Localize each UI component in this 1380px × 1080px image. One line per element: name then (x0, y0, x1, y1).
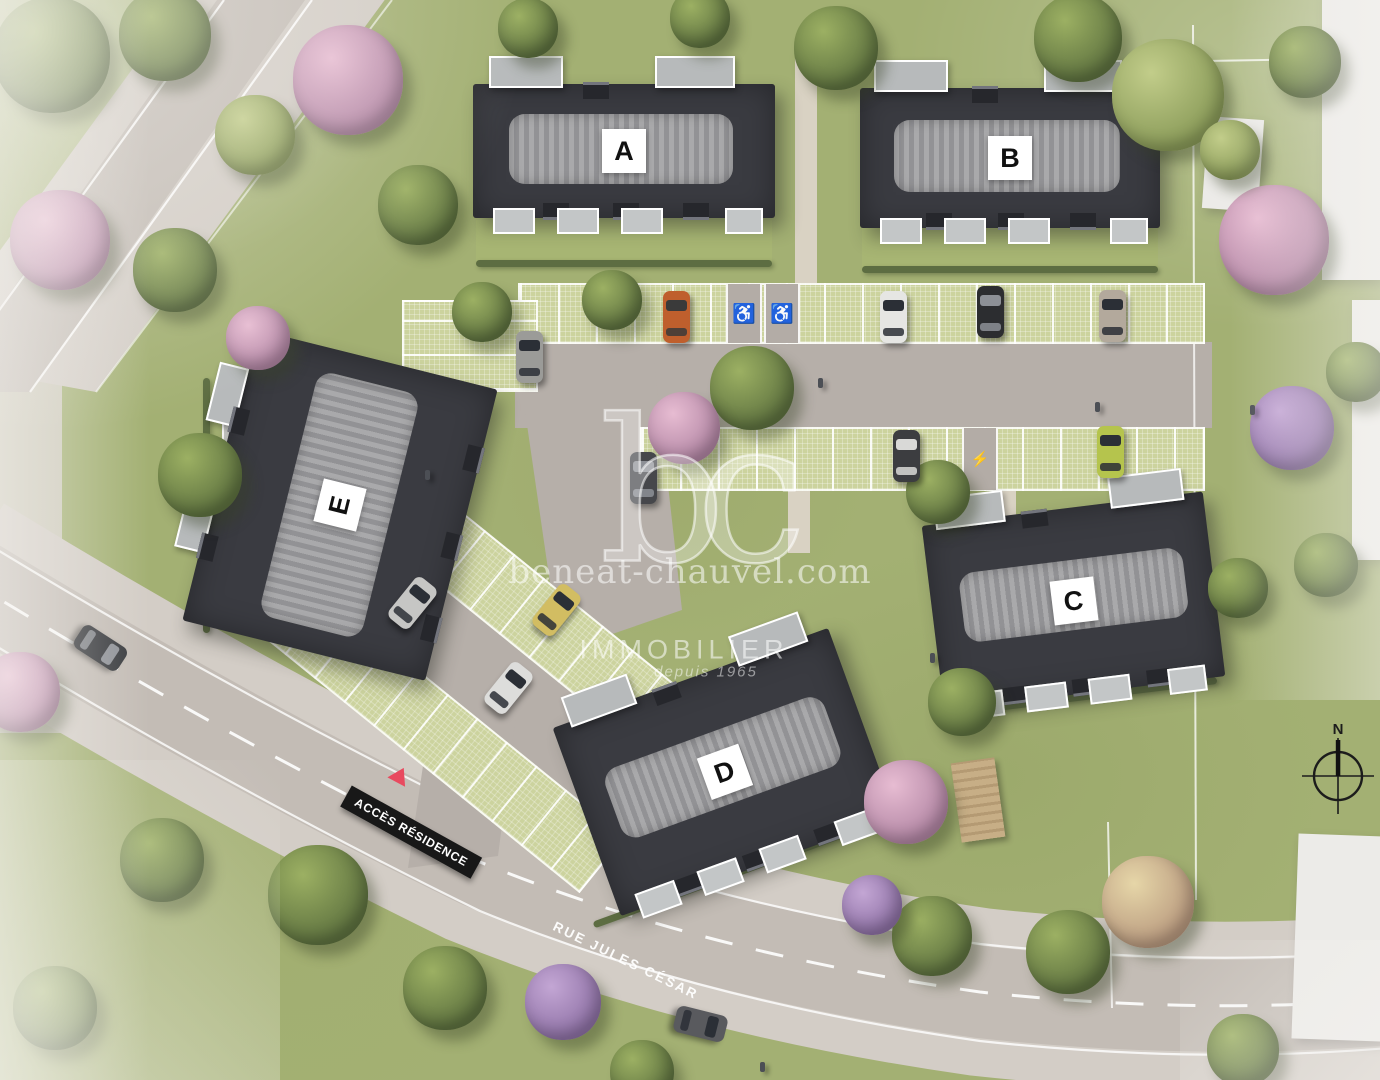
flowering-tree (1219, 185, 1329, 295)
car-windshield (99, 642, 120, 666)
car-rear-window (666, 328, 687, 336)
tree (120, 818, 204, 902)
car (630, 452, 657, 504)
car-rear-window (1100, 463, 1121, 471)
car-rear-window (1102, 327, 1123, 335)
flowering-tree (1102, 856, 1194, 948)
car (880, 291, 907, 343)
compass-north-needle (1336, 740, 1341, 776)
balcony (493, 208, 535, 234)
tree (498, 0, 558, 58)
roof-terrace (874, 60, 948, 92)
roof-terrace (655, 56, 735, 88)
car (1097, 426, 1124, 478)
car-rear-window (883, 328, 904, 336)
tree (119, 0, 211, 81)
building-label-text: C (1062, 584, 1085, 617)
car-windshield (1100, 435, 1121, 446)
disabled-parking-stall: ♿ (726, 284, 762, 343)
balcony (725, 208, 763, 234)
person (425, 470, 430, 480)
balcony (944, 218, 986, 244)
dormer (683, 203, 709, 220)
balcony (621, 208, 663, 234)
car-windshield (519, 340, 540, 351)
car-rear-window (488, 690, 509, 709)
flowering-tree (226, 306, 290, 370)
balcony (1110, 218, 1148, 244)
balcony (1008, 218, 1050, 244)
person (818, 378, 823, 388)
car (516, 331, 543, 383)
tree (1294, 533, 1358, 597)
compass: N (1298, 718, 1378, 818)
flowering-tree (1250, 386, 1334, 470)
car-windshield (883, 300, 904, 311)
car-rear-window (896, 467, 917, 475)
flowering-tree (525, 964, 601, 1040)
car-windshield (633, 461, 654, 472)
tree (710, 346, 794, 430)
wheelchair-icon: ♿ (770, 302, 794, 326)
flowering-tree (10, 190, 110, 290)
compass-north-label: N (1333, 721, 1344, 738)
dormer (972, 86, 998, 103)
ev-charging-icon: ⚡ (971, 450, 990, 468)
building-a-label: A (602, 129, 646, 173)
tree (1200, 120, 1260, 180)
car-rear-window (519, 368, 540, 376)
tree (794, 6, 878, 90)
balcony (1024, 682, 1069, 713)
dormer (583, 82, 609, 99)
car-rear-window (536, 612, 557, 631)
car (663, 291, 690, 343)
dormer (1021, 509, 1049, 529)
building-b-label: B (988, 136, 1032, 180)
car-windshield (896, 439, 917, 450)
neighbor-building (1291, 833, 1380, 1041)
flowering-tree (864, 760, 948, 844)
tree (1026, 910, 1110, 994)
tree (378, 165, 458, 245)
building-label-text: D (710, 754, 739, 790)
tree (403, 946, 487, 1030)
car-rear-window (633, 489, 654, 497)
tree (158, 433, 242, 517)
car (893, 430, 920, 482)
tree (0, 0, 110, 113)
person (1250, 405, 1255, 415)
car (1099, 290, 1126, 342)
person (1095, 402, 1100, 412)
tree (1208, 558, 1268, 618)
building-label-text: B (1000, 143, 1020, 174)
building-label-text: A (614, 136, 634, 167)
flowering-tree (293, 25, 403, 135)
person (930, 653, 935, 663)
car-windshield (703, 1015, 719, 1038)
roof-terrace (489, 56, 563, 88)
flowering-tree (842, 875, 902, 935)
tree (1269, 26, 1341, 98)
flowering-tree (648, 392, 720, 464)
tree (268, 845, 368, 945)
tree (928, 668, 996, 736)
disabled-parking-stall: ♿ (764, 284, 800, 343)
tree (1034, 0, 1122, 82)
balcony (1088, 674, 1133, 705)
car-rear-window (392, 605, 413, 624)
tree (582, 270, 642, 330)
tree (452, 282, 512, 342)
building-c-label: C (1049, 576, 1098, 625)
car-rear-window (78, 629, 96, 651)
wheelchair-icon: ♿ (732, 302, 756, 326)
balcony (880, 218, 922, 244)
car-windshield (666, 300, 687, 311)
car-windshield (552, 590, 575, 612)
car-windshield (504, 668, 527, 690)
tree (1326, 342, 1380, 402)
neighbor-building (1352, 300, 1380, 560)
person (760, 1062, 765, 1072)
building-label-text: E (323, 493, 357, 518)
footpath-between-a-b (795, 58, 817, 290)
car-windshield (408, 583, 431, 605)
car-windshield (1102, 299, 1123, 310)
tree (133, 228, 217, 312)
car-windshield (980, 295, 1001, 306)
balcony (1167, 664, 1208, 694)
hedge (862, 266, 1158, 273)
dormer (1070, 213, 1096, 230)
car-rear-window (679, 1009, 692, 1031)
building-a: A (473, 84, 775, 218)
tree (1207, 1014, 1279, 1080)
tree (215, 95, 295, 175)
site-plan-scene: ♿ ♿ ⚡ A (0, 0, 1380, 1080)
car (977, 286, 1004, 338)
tree (13, 966, 97, 1050)
hedge (476, 260, 772, 267)
footpath-to-d (788, 491, 810, 553)
balcony (557, 208, 599, 234)
car-rear-window (980, 323, 1001, 331)
tree (892, 896, 972, 976)
